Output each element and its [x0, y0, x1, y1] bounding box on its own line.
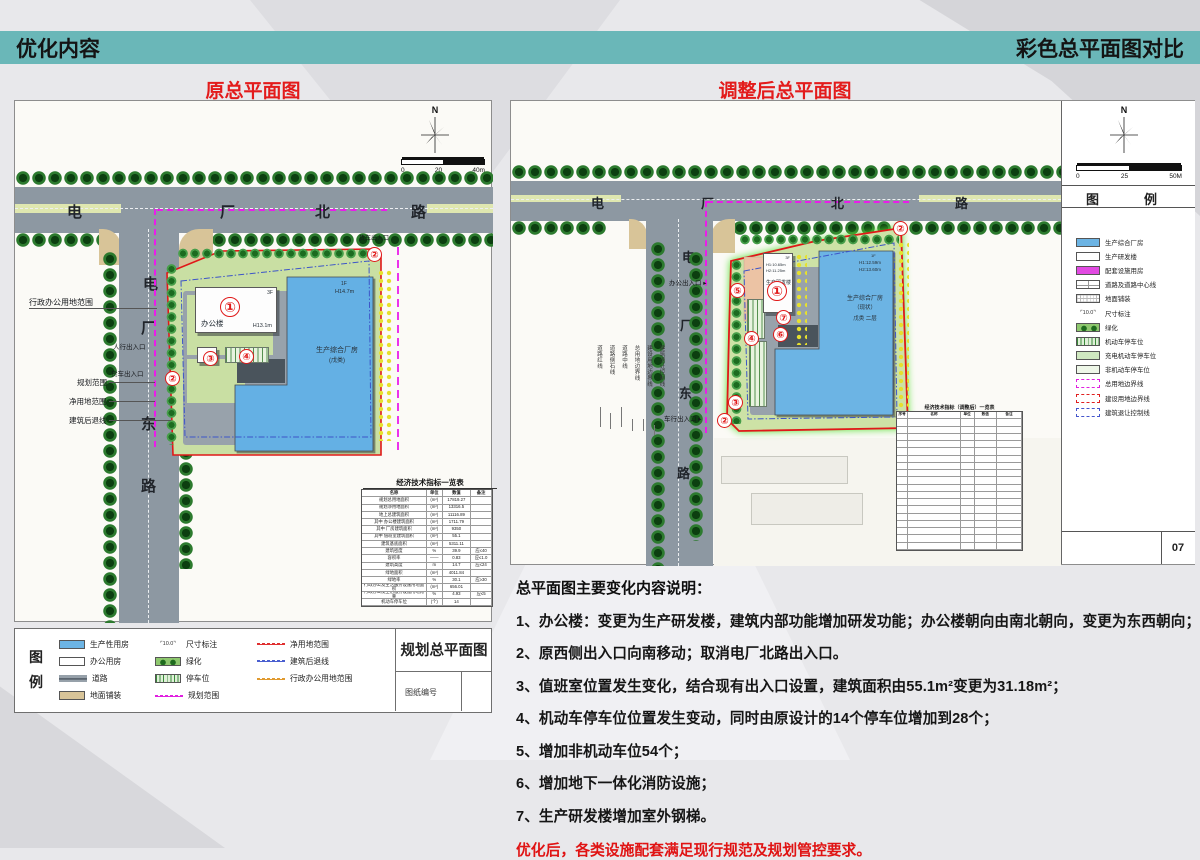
factory-floors: 1F [341, 281, 347, 287]
site-tree-row [739, 233, 899, 246]
indicator-table-adjusted: 经济技术指标（调整后）一览表 序号 名称 单位 数值 备注 [896, 404, 1023, 551]
road-north: 电 厂 北 路 [511, 181, 1061, 221]
shrub-dots [795, 253, 807, 345]
legend-label: 净用地范围 [290, 639, 329, 650]
legend-symbol [1076, 280, 1100, 289]
notes-conclusion: 优化后，各类设施配套满足现行规范及规划管控要求。 [516, 839, 1192, 860]
planning-boundary-line [154, 209, 156, 447]
header-bar: 优化内容 彩色总平面图对比 [0, 31, 1200, 64]
sheet-number-label: 图纸编号 [405, 687, 437, 698]
legend-header: 例 [1144, 189, 1157, 208]
vehicle-entrance-label: 车行出入口 ▸ [664, 413, 702, 423]
left-legend: 图 例 生产性用房 办公用房 道路 地面铺装 [14, 628, 492, 713]
legend-label: 配套设施用房 [1105, 266, 1143, 275]
truck-entrance-label: 货车出入口 [111, 368, 144, 378]
indicator-table: 名称 单位 数值 备注 规划总用地面积 (m²) 17819.27 规划净用地面… [361, 489, 493, 607]
shrub-dots [897, 241, 909, 426]
tree-row [15, 169, 493, 187]
original-site-plan: N 0 20 40m 电 厂 北 路 电 厂 [14, 100, 492, 622]
change-marker: ② [717, 413, 732, 428]
legend-label: 建筑后退线 [290, 656, 329, 667]
legend-label: 绿化 [1105, 323, 1118, 332]
net-land-label: 净用地范围 [69, 396, 107, 407]
site-boundary-line [705, 201, 707, 433]
note-item: 1、办公楼：变更为生产研发楼，建筑内部功能增加研发功能；办公楼朝向由南北朝向，变… [516, 610, 1192, 631]
change-marker: ② [367, 247, 382, 262]
notes-list: 1、办公楼：变更为生产研发楼，建筑内部功能增加研发功能；办公楼朝向由南北朝向，变… [516, 610, 1192, 826]
change-marker: ① [767, 281, 787, 301]
legend-label: 充电机动车停车位 [1105, 351, 1156, 360]
legend-label: 尺寸标注 [1105, 309, 1131, 318]
north-arrow: N [419, 105, 451, 160]
change-marker: ③ [728, 395, 743, 410]
legend-label: 建筑退让控制线 [1105, 408, 1150, 417]
legend-symbol [257, 678, 285, 680]
legend-label: 办公用房 [90, 656, 121, 667]
legend-symbol [1076, 238, 1100, 247]
legend-symbol [1076, 323, 1100, 332]
factory-name: 生产综合厂房 [831, 293, 899, 302]
factory-category: (戊类) [299, 355, 375, 364]
legend-symbol [59, 675, 87, 682]
compass-rose-icon [1108, 115, 1140, 155]
parking-strip [749, 341, 767, 407]
titleblock-name: 规划总平面图 [396, 639, 492, 660]
legend-symbol [59, 691, 85, 700]
legend-label: 机动车停车位 [1105, 337, 1143, 346]
factory-floors: 1F [871, 253, 876, 258]
right-plan-title: 调整后总平面图 [510, 76, 1060, 98]
site-boundary-line [707, 201, 909, 203]
legend-symbol [1076, 379, 1100, 388]
legend-symbol [1076, 351, 1100, 360]
legend-symbol [59, 640, 85, 649]
tree-column [649, 241, 667, 566]
legend-label: 行政办公用地范围 [290, 673, 352, 684]
legend-symbol [155, 674, 181, 683]
planning-scope-label: 规划范围 [77, 377, 107, 388]
legend-symbol [257, 660, 285, 662]
junction-paving [629, 219, 647, 249]
legend-label: 绿化 [186, 656, 202, 667]
existing-building-outline [721, 456, 848, 484]
legend-symbol [1076, 309, 1100, 318]
legend-symbol [59, 657, 85, 666]
legend-label: 道路及道路中心线 [1105, 280, 1156, 289]
tree-row [511, 219, 607, 237]
legend-symbol [1076, 365, 1100, 374]
legend-label: 地面铺装 [1105, 294, 1131, 303]
factory-status: （现状） [831, 303, 899, 311]
planning-boundary-line [157, 209, 387, 211]
change-marker: ⑦ [776, 310, 791, 325]
factory-h2: H2:13.60m [859, 267, 881, 272]
page-title: 优化内容 [16, 33, 100, 63]
legend-symbol [1076, 294, 1100, 303]
legend-symbol [1076, 394, 1100, 403]
admin-land-label: 行政办公用地范围 [29, 297, 93, 308]
legend-label: 非机动车停车位 [1105, 365, 1150, 374]
factory-category: 戊类 二层 [831, 314, 899, 322]
legend-label: 停车位 [186, 673, 209, 684]
legend-symbol [1076, 266, 1100, 275]
pedestrian-entrance-label: 人行出入口 [113, 341, 146, 351]
legend-label: 生产综合厂房 [1105, 238, 1143, 247]
note-item: 4、机动车停车位位置发生变动，同时由原设计的14个停车位增加到28个； [516, 707, 1192, 728]
legend-symbol [1076, 408, 1100, 417]
change-marker: ④ [744, 331, 759, 346]
compass-rose-icon [419, 115, 451, 155]
legend-header: 图 [1086, 189, 1099, 208]
existing-building-outline [751, 493, 863, 525]
legend-symbol [155, 695, 183, 697]
right-legend: N 0 25 50M 图 例 [1061, 101, 1195, 564]
sheet-page-number: 07 [1161, 531, 1195, 564]
factory-h1: H1:12.59m [859, 260, 881, 265]
legend-symbol [155, 640, 181, 649]
legend-label: 尺寸标注 [186, 639, 217, 650]
north-arrow: N [1108, 105, 1140, 160]
change-marker: ⑤ [730, 283, 745, 298]
note-item: 3、值班室位置发生变化，结合现有出入口设置，建筑面积由55.1m²变更为31.1… [516, 675, 1192, 696]
legend-symbol [1076, 252, 1100, 261]
site-tree-column [165, 263, 178, 445]
legend-label: 总用地边界线 [1105, 379, 1143, 388]
legend-label: 规划范围 [188, 690, 219, 701]
change-marker: ③ [203, 351, 218, 366]
road-north: 电 厂 北 路 [15, 187, 493, 233]
factory-height: H14.7m [335, 289, 354, 295]
note-item: 6、增加地下一体化消防设施； [516, 772, 1192, 793]
legend-items: 生产性用房 办公用房 道路 地面铺装 尺寸标注 [59, 637, 391, 706]
legend-label: 地面铺装 [90, 690, 121, 701]
change-marker: ② [165, 371, 180, 386]
site-tree-row [177, 247, 373, 260]
page-subtitle: 彩色总平面图对比 [1016, 33, 1184, 63]
left-plan-title: 原总平面图 [14, 76, 492, 98]
setback-label: 建筑后退线 [69, 415, 107, 426]
note-item: 5、增加非机动车位54个； [516, 740, 1192, 761]
legend-label: 道路 [92, 673, 108, 684]
change-marker: ② [893, 221, 908, 236]
office-entrance-label: 办公出入口 ▸ [669, 277, 707, 287]
tree-row [511, 163, 1061, 181]
shrub-dots [377, 269, 393, 441]
change-notes: 总平面图主要变化内容说明： 1、办公楼：变更为生产研发楼，建筑内部功能增加研发功… [516, 577, 1192, 860]
truck-entrance-north-label: 货车出入口 [359, 233, 389, 242]
note-item: 2、原西侧出入口向南移动；取消电厂北路出入口。 [516, 642, 1192, 663]
legend-label: 建设用地边界线 [1105, 394, 1150, 403]
tree-column [101, 251, 119, 623]
scale-bar: 0 25 50M [1076, 165, 1182, 180]
legend-label: 生产研发楼 [1105, 252, 1137, 261]
change-marker: ① [220, 297, 240, 317]
note-item: 7、生产研发楼增加室外钢梯。 [516, 805, 1192, 826]
legend-title: 图 例 [27, 645, 45, 695]
adjusted-site-plan: 电 厂 北 路 电 厂 东 路 3F H1:10.65m H2:11.25m [510, 100, 1195, 565]
change-marker: ④ [239, 349, 254, 364]
indicator-table-title: 经济技术指标一览表 [363, 477, 497, 489]
legend-items: 生产综合厂房 生产研发楼 配套设施用房 道路及道路中心线 [1076, 235, 1194, 419]
change-marker: ⑥ [773, 327, 788, 342]
legend-symbol [257, 643, 285, 645]
road-line-labels: 道路红线道路侧石线道路中线总用地边界线建设用地边界线建筑退让控制线 [595, 345, 666, 387]
legend-label: 生产性用房 [90, 639, 129, 650]
factory-name: 生产综合厂房 [299, 345, 375, 355]
tree-column [687, 251, 705, 541]
legend-symbol [155, 657, 181, 666]
notes-title: 总平面图主要变化内容说明： [516, 577, 1192, 598]
legend-symbol [1076, 337, 1100, 346]
